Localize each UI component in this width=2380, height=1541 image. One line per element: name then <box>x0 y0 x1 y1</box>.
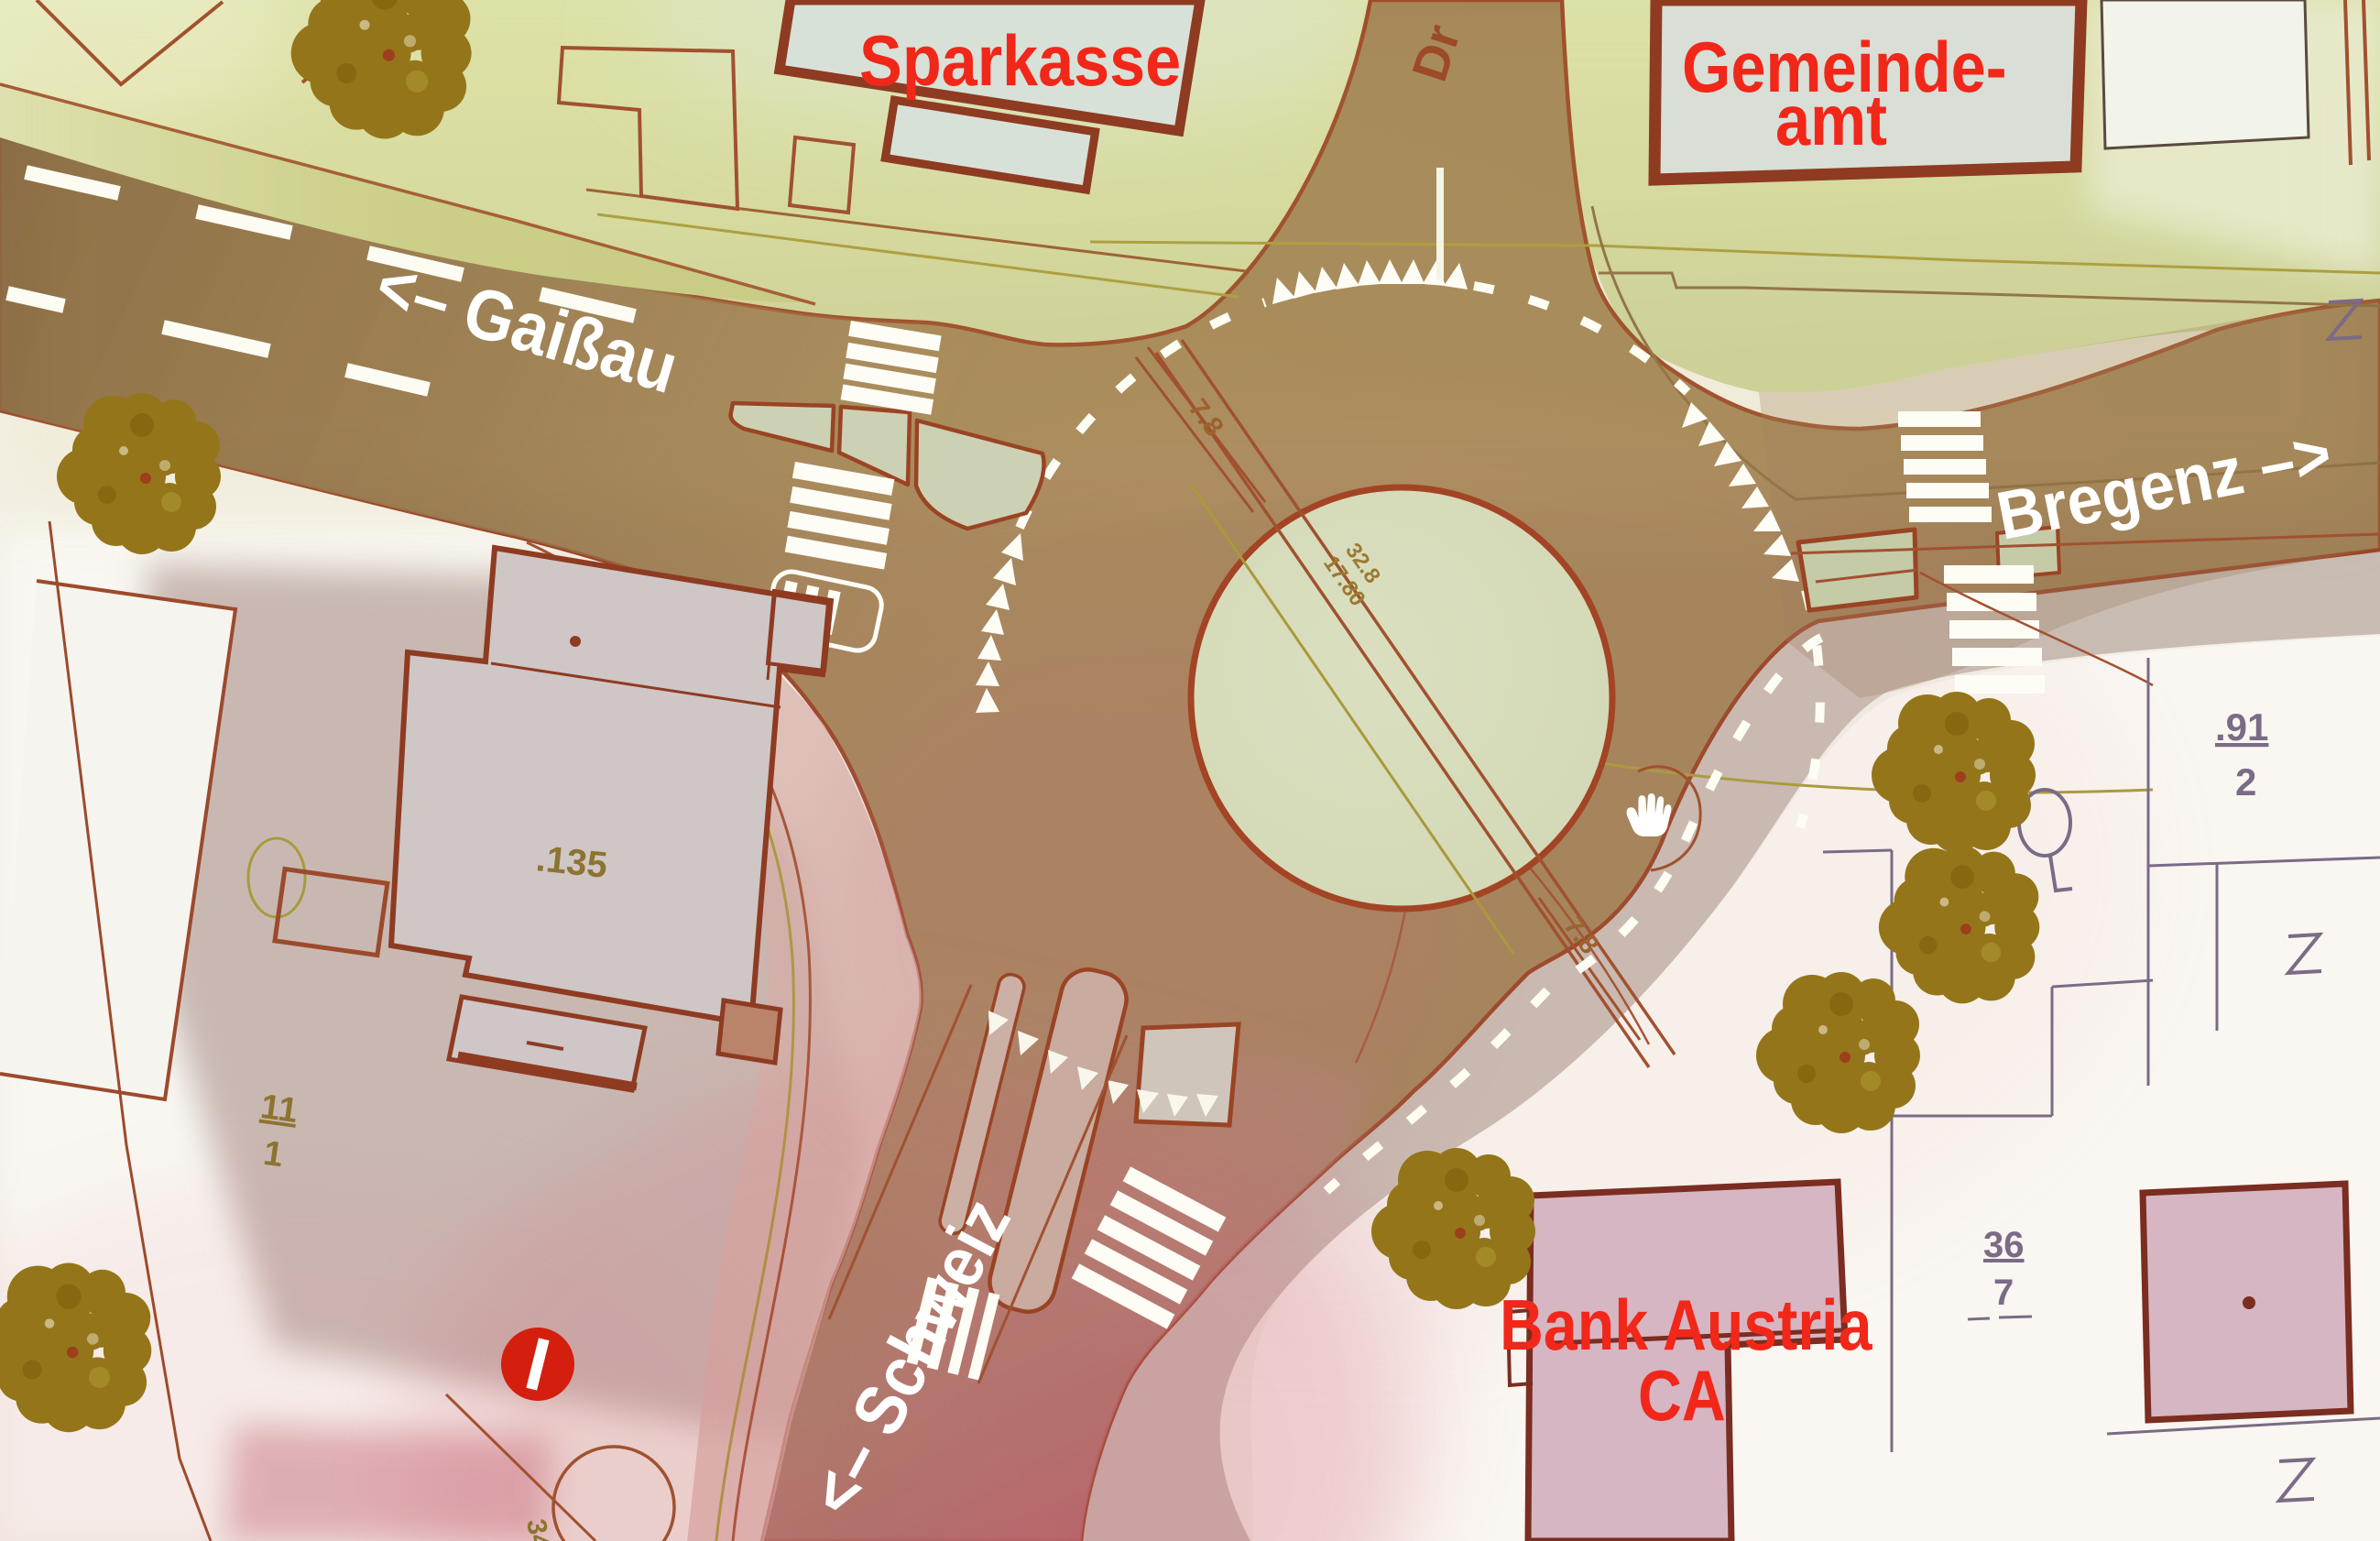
svg-text:amt: amt <box>1775 80 1887 160</box>
svg-text:Sparkasse: Sparkasse <box>859 21 1181 101</box>
svg-text:34: 34 <box>520 1516 555 1541</box>
svg-text:.91: .91 <box>2215 705 2268 749</box>
svg-text:2: 2 <box>2235 760 2256 803</box>
svg-text:11: 11 <box>258 1087 300 1131</box>
svg-text:CA: CA <box>1638 1356 1726 1436</box>
svg-text:Bank Austria: Bank Austria <box>1500 1285 1872 1365</box>
svg-text:.135: .135 <box>534 838 609 886</box>
svg-text:36: 36 <box>1983 1225 2025 1265</box>
svg-text:7: 7 <box>1993 1273 2014 1313</box>
